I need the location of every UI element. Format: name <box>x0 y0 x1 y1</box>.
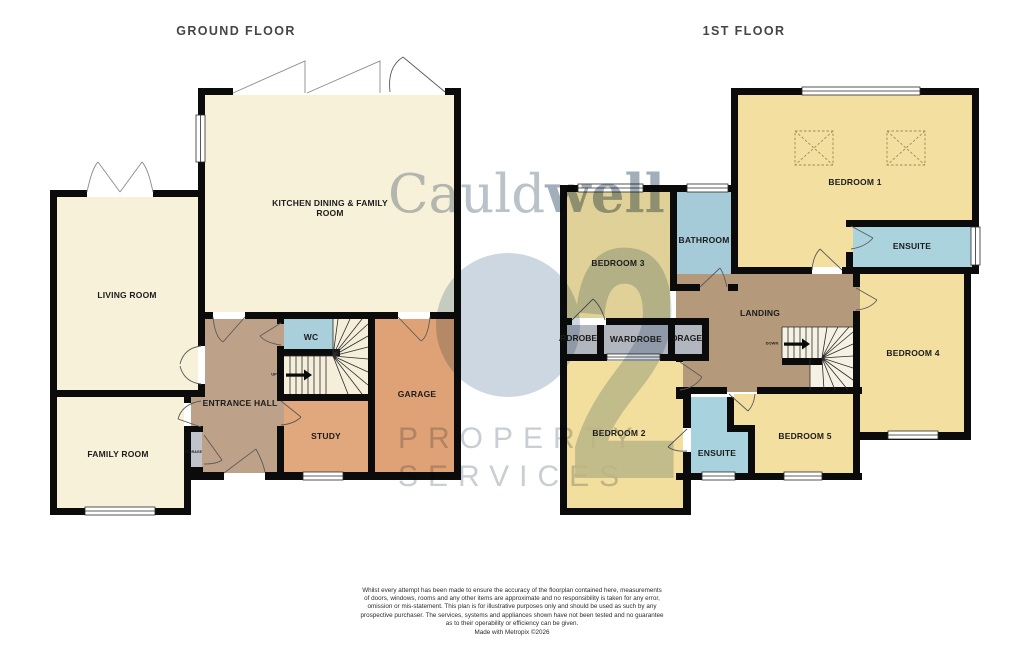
disclaimer-text: Whilst every attempt has been made to en… <box>297 587 727 628</box>
label-bedroom-3: BEDROOM 3 <box>591 258 644 268</box>
door-kitchen-bifold <box>233 61 380 93</box>
label-bathroom: BATHROOM <box>678 235 729 245</box>
room-bedroom-3 <box>567 192 670 318</box>
first-floor-rooms <box>567 95 972 508</box>
label-ground-storage: STORAGE <box>185 448 202 459</box>
label-bedroom-5: BEDROOM 5 <box>778 431 831 441</box>
label-bedroom-1: BEDROOM 1 <box>828 177 881 187</box>
label-kitchen: KITCHEN DINING & FAMILY ROOM <box>272 198 388 218</box>
credit-text: Made with Metropix ©2026 <box>475 629 550 636</box>
label-ensuite-bottom: ENSUITE <box>698 448 736 458</box>
floorplan-page: 2 Cauldwell PROPERTY SERVICES GROUND FLO… <box>0 0 1024 646</box>
label-down: DOWN <box>766 342 779 347</box>
label-entrance-hall: ENTRANCE HALL <box>203 398 278 408</box>
door-kitchen-right <box>390 57 445 92</box>
ground-floor-title: GROUND FLOOR <box>176 24 296 38</box>
room-entrance-hall <box>205 319 284 473</box>
label-living-room: LIVING ROOM <box>97 290 156 300</box>
label-landing: LANDING <box>740 308 780 318</box>
label-bedroom-4: BEDROOM 4 <box>886 348 939 358</box>
label-wardrobe-left: WARDROBE <box>559 333 597 344</box>
label-bedroom-2: BEDROOM 2 <box>592 428 645 438</box>
label-wc: WC <box>304 332 319 342</box>
label-study: STUDY <box>311 431 341 441</box>
label-ensuite-top: ENSUITE <box>893 241 931 251</box>
door-living-french <box>87 162 153 192</box>
label-family-room: FAMILY ROOM <box>87 449 148 459</box>
label-up: UP <box>271 373 277 378</box>
label-first-storage: STORAGE <box>674 333 702 344</box>
ground-floor-rooms <box>57 95 454 508</box>
label-wardrobe-center: WARDROBE <box>610 334 662 344</box>
label-garage: GARAGE <box>398 389 437 399</box>
floorplan-drawing <box>0 0 1024 646</box>
first-floor-title: 1ST FLOOR <box>703 24 786 38</box>
